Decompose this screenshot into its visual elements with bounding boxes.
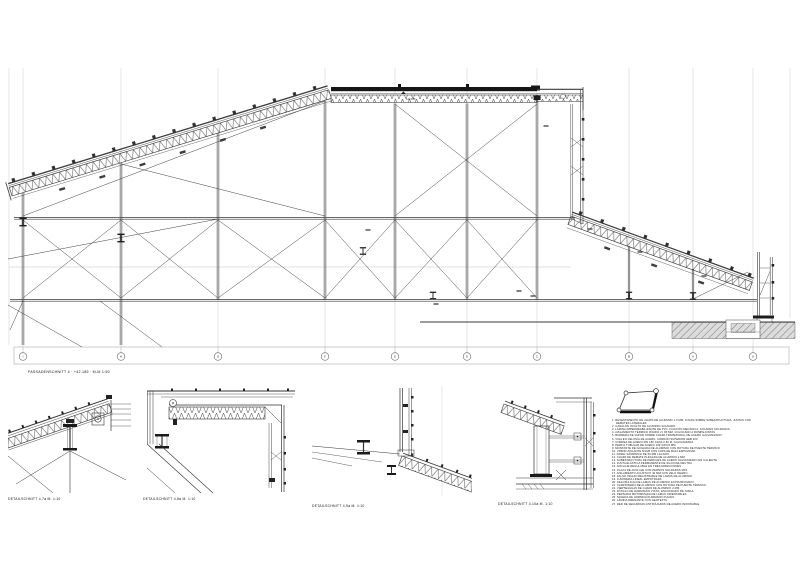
detail-caption-1: DETAILSCHNITT 4.7a M. 1:10 bbox=[8, 497, 61, 501]
legend-key-plan bbox=[612, 388, 664, 416]
detail-caption-4: DETAILSCHNITT 4.10a M. 1:10 bbox=[498, 502, 553, 506]
drawing-sheet: I H G F E D C B A O bbox=[0, 0, 800, 566]
clerestory-wall bbox=[531, 86, 584, 225]
detail-caption-2: DETAILSCHNITT 4.8a M. 1:10 bbox=[143, 497, 196, 501]
legend: 1. REVESTIMIENTO DE CHAPA DE ALUMINIO 1.… bbox=[612, 388, 764, 506]
column-grid-lines bbox=[9, 68, 790, 347]
detail-drawing-1-eave bbox=[8, 386, 133, 494]
grid-bubble-strip: I H G F E D C B A O bbox=[14, 347, 789, 364]
level-mark-top: +42.185 bbox=[406, 97, 416, 101]
roof-flat-top: +42.185 bbox=[331, 84, 537, 103]
legend-list: 1. REVESTIMIENTO DE CHAPA DE ALUMINIO 1.… bbox=[612, 419, 764, 506]
grid-bubble-label: H bbox=[120, 355, 122, 359]
roof-truss-right-slope bbox=[565, 209, 755, 299]
grid-bubble-label: E bbox=[394, 355, 396, 359]
main-section-caption: FASSADENSCHNITT 4 · +42.185 · M-M 1:50 bbox=[28, 370, 110, 374]
connection-glyphs bbox=[19, 125, 706, 304]
detail-drawing-2-parapet-corner bbox=[143, 386, 301, 494]
detail-caption-3: DETAILSCHNITT 4.9a M. 1:10 bbox=[312, 504, 365, 508]
roof-truss-left-slope bbox=[5, 83, 334, 205]
grid-bubble-label: A bbox=[692, 355, 694, 359]
main-section-drawing: I H G F E D C B A O bbox=[0, 0, 800, 382]
detail-drawing-3-mullion-slope bbox=[312, 386, 472, 502]
legend-item: 27. RED DE SEGURIDAD ANTIPÁJAROS DE ACER… bbox=[612, 503, 764, 506]
grid-bubble-label: B bbox=[628, 355, 630, 359]
ground-slab-hatch bbox=[672, 320, 795, 339]
cross-bracing bbox=[8, 101, 748, 347]
horizontal-chords bbox=[10, 217, 795, 322]
end-wall-right bbox=[753, 252, 774, 322]
grid-bubble-label: F bbox=[324, 355, 326, 359]
key-plan-icon bbox=[612, 388, 664, 416]
detail-drawing-4-base bbox=[498, 386, 610, 500]
